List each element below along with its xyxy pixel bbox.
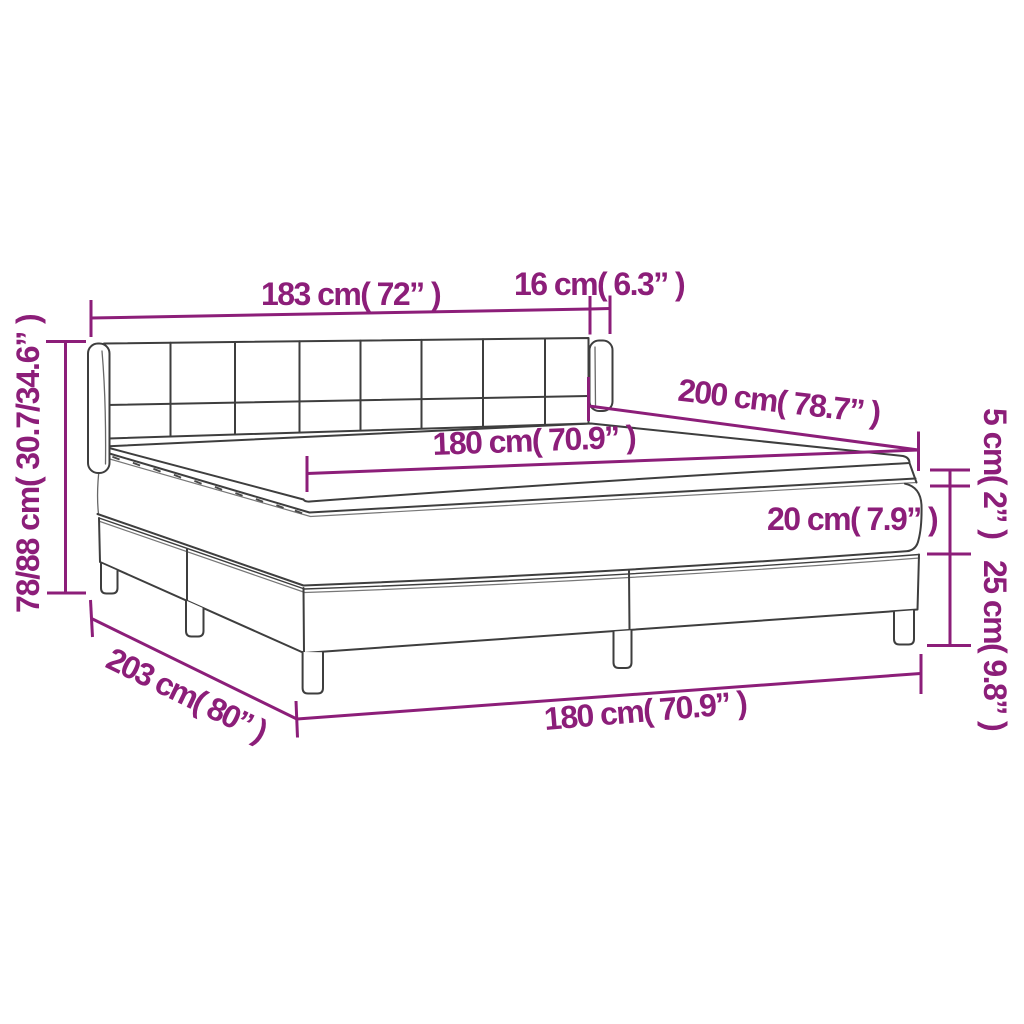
svg-text:5 cm( 2” ): 5 cm( 2” ) (977, 408, 1013, 539)
svg-text:180 cm( 70.9” ): 180 cm( 70.9” ) (432, 419, 637, 462)
svg-text:25 cm( 9.8” ): 25 cm( 9.8” ) (977, 560, 1013, 731)
svg-text:78/88 cm( 30.7/34.6” ): 78/88 cm( 30.7/34.6” ) (10, 314, 46, 613)
svg-text:20 cm( 7.9” ): 20 cm( 7.9” ) (767, 501, 938, 537)
svg-text:183 cm( 72” ): 183 cm( 72” ) (261, 276, 441, 312)
svg-text:16 cm( 6.3” ): 16 cm( 6.3” ) (514, 266, 685, 302)
